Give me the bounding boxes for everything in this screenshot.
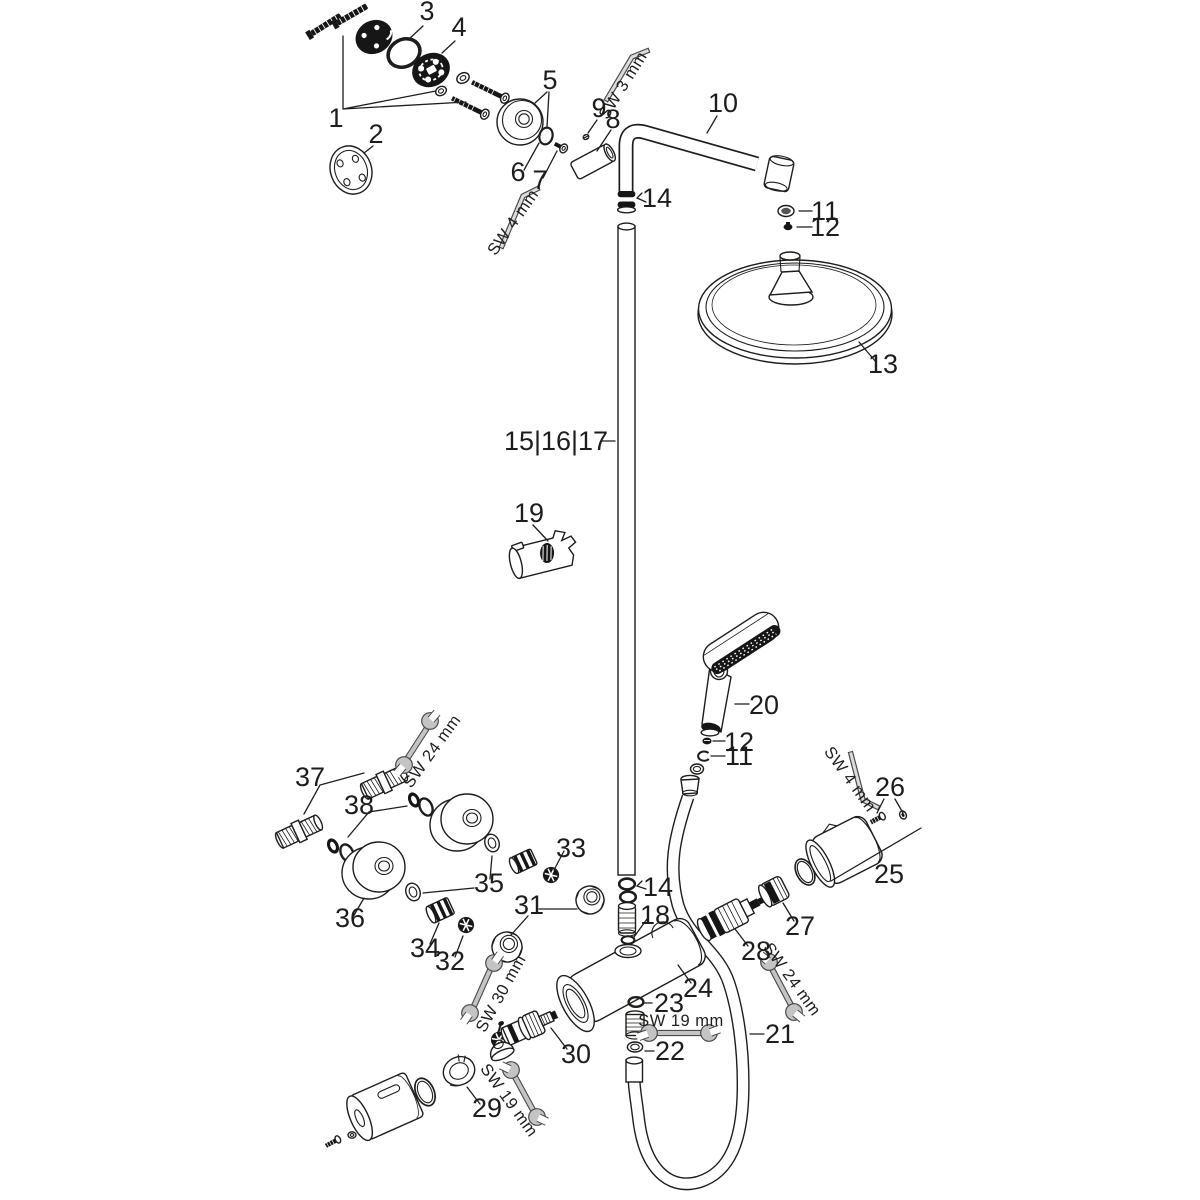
part-label-18: 18 [640,900,670,930]
part-label-1: 1 [328,103,343,133]
part-31-nut-upper [571,881,608,918]
part-label-22: 22 [655,1036,685,1066]
part-label-14-top: 14 [642,183,672,213]
part-19-slider [505,527,581,580]
part-7-screw [553,140,569,155]
part-label-25: 25 [874,859,904,889]
part-label-20: 20 [749,690,779,720]
part-label-12-top: 12 [810,212,840,242]
part-14-o-rings-bottom [619,879,636,903]
part-hose-cone-nut [681,775,699,795]
part-handle-screws [324,1132,356,1149]
part-label-21: 21 [765,1019,795,1049]
part-12-screw-top [784,222,793,230]
part-label-36: 36 [335,903,365,933]
part-label-10: 10 [708,88,738,118]
part-label-30: 30 [561,1039,591,1069]
part-label-7: 7 [532,165,547,195]
part-15-16-17-riser-pipe [618,223,635,875]
part-11-filter-seal-top [778,206,794,217]
part-5-escutcheon [497,99,543,145]
exploded-parts-diagram: 1 2 3 4 5 6 7 8 9 10 11 12 13 14 15|16|1… [0,0,1200,1200]
part-9-grub-screw [581,133,590,142]
part-14-seal-rings-top [618,191,636,213]
part-29-stop-ring [438,1050,479,1090]
part-label-14-bottom: 14 [643,872,673,902]
part-label-31: 31 [514,890,544,920]
tool-label-sw3: SW 3 mm [595,49,650,123]
part-32-check-valve [456,915,476,935]
part-label-11-bottom: 11 [725,741,753,771]
part-22-seal-ring [627,1042,642,1052]
part-11-o-ring-bottom [698,752,709,761]
part-35-ring-lower [403,881,422,903]
part-36-rosette-upper [430,794,493,851]
tool-label-sw19-horizontal: SW 19 mm [638,1012,724,1030]
part-34-aerator [424,897,454,924]
part-37-adapter-lower [273,812,325,851]
part-28-thermostat-cartridge [694,888,769,943]
part-33-check-valve [541,865,561,885]
part-18-connector [619,903,636,937]
part-12-filter-bottom [702,738,711,745]
part-4-valve-disc [406,46,456,93]
part-seal-ring-hose [691,764,704,774]
part-label-24: 24 [683,973,713,1003]
part-label-34: 34 [410,933,440,963]
part-seal-under-18 [622,936,635,944]
part-hose-end-fitting [626,1057,643,1082]
part-label-6: 6 [510,157,525,187]
part-label-13: 13 [868,349,898,379]
part-label-27: 27 [785,911,815,941]
part-label-2: 2 [368,119,383,149]
part-label-3: 3 [419,0,434,26]
part-wall-plate [349,14,398,61]
part-label-33: 33 [556,833,586,863]
diagram-canvas: 1 2 3 4 5 6 7 8 9 10 11 12 13 14 15|16|1… [0,0,1200,1200]
part-label-26: 26 [875,772,905,802]
part-label-5: 5 [542,65,557,95]
tool-label-sw4-left: SW 4 mm [484,186,542,259]
part-8-sleeve [570,142,618,179]
part-label-35: 35 [474,868,504,898]
part-33-aerator [508,849,538,875]
part-label-38: 38 [344,790,374,820]
leader-lines [304,26,921,1104]
part-label-4: 4 [451,12,466,42]
part-label-19: 19 [514,498,544,528]
part-38-seals-upper [406,790,436,817]
part-label-15-16-17: 15|16|17 [504,426,608,456]
part-label-37: 37 [295,762,325,792]
